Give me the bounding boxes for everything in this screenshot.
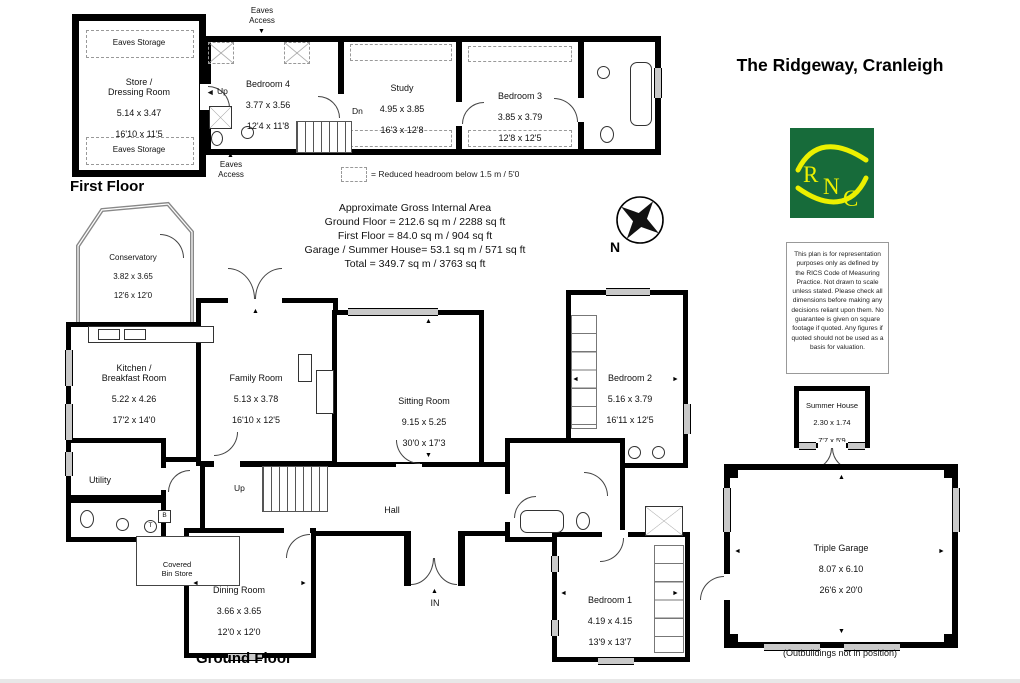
area-line-ground: Ground Floor = 212.6 sq m / 2288 sq ft [260,215,570,229]
area-line-total: Total = 349.7 sq m / 3763 sq ft [260,257,570,271]
dimension-arrow: ► [938,548,945,555]
up-label-first: Up [217,87,228,97]
outbuildings-note: (Outbuildings not in position) [720,648,960,658]
sink-icon [116,518,129,531]
eaves-storage-label-top: Eaves Storage [113,38,165,48]
toilet-icon [211,131,223,146]
bedroom2-door-gap [586,462,612,472]
room-name: Bedroom 1 [588,595,633,606]
room-imperial: 17'2 x 14'0 [102,415,167,426]
sink-icon [628,446,641,459]
room-metric: 2.30 x 1.74 [806,419,858,428]
room-imperial: 12'4 x 11'8 [246,121,291,132]
wardrobe-icon [654,545,684,653]
dimension-arrow: ► [672,590,679,597]
room-metric: 3.85 x 3.79 [498,112,543,123]
eaves-access-label-bottom: Eaves Access [218,160,244,179]
utility-window [65,452,73,476]
bedroom2-side-window [683,404,691,434]
compass-north-label: N [610,239,620,255]
up-label-ground: Up [234,484,245,494]
room-metric: 3.77 x 3.56 [246,100,291,111]
porch-wall-left [404,532,411,586]
room-name: Family Room [229,373,282,384]
eaves-access-label-top: Eaves Access [249,6,275,25]
entrance-door-arc [434,558,457,585]
wall-study-bedroom3-upper [456,36,462,102]
room-label-hall: Hall [384,494,400,526]
area-summary: Approximate Gross Internal Area Ground F… [260,201,570,271]
floorplan-canvas: Eaves Storage Eaves Storage Store / Dres… [0,0,1020,683]
area-line-garage: Garage / Summer House= 53.1 sq m / 571 s… [260,243,570,257]
room-label-dining: Dining Room 3.66 x 3.65 12'0 x 12'0 [213,574,265,648]
sitting-room-window [348,308,438,316]
room-name: Summer House [806,402,858,411]
room-name: Store / Dressing Room [108,77,170,98]
bedroom2-window [606,288,650,296]
room-label-garage: Triple Garage 8.07 x 6.10 26'6 x 20'0 [814,532,869,606]
room-name: Bedroom 2 [606,373,653,384]
dimension-arrow: ► [300,580,307,587]
room-metric: 4.95 x 3.85 [380,104,425,115]
up-arrow-icon: ▲ [227,152,234,159]
garage-window [952,488,960,532]
room-metric: 3.66 x 3.65 [213,606,265,617]
eaves-cupboard-box [208,42,234,64]
room-metric: 9.15 x 5.25 [398,417,450,428]
stairs-first-floor [296,121,352,153]
room-imperial: 16'10 x 12'5 [229,415,282,426]
garage-corner-pillar [724,634,738,648]
room-metric: 5.13 x 3.78 [229,394,282,405]
chimney-breast [316,370,334,414]
dimension-arrow: ► [672,376,679,383]
reduced-headroom-strip [468,46,572,62]
entrance-door-arc [411,558,434,585]
wall-bedroom3-bathroom-lower [578,122,584,155]
toilet-icon [600,126,614,143]
room-name: Utility [89,475,111,486]
garage-corner-pillar [724,464,738,478]
room-label-bedroom3: Bedroom 3 3.85 x 3.79 12'8 x 12'5 [498,80,543,154]
dimension-arrow: ▲ [425,318,432,325]
room-label-sitting: Sitting Room 9.15 x 5.25 30'0 x 17'3 [398,385,450,459]
area-heading: Approximate Gross Internal Area [260,201,570,215]
bath-icon [630,62,652,126]
bedroom1-window [598,657,634,665]
kitchen-window [65,350,73,386]
garage-side-door-arc [700,576,724,600]
wardrobe-icon [571,315,597,429]
room-imperial: 12'8 x 12'5 [498,133,543,144]
room-label-kitchen: Kitchen / Breakfast Room 5.22 x 4.26 17'… [102,352,167,436]
porch-opening-gap [411,531,458,539]
dimension-arrow: ▼ [425,452,432,459]
room-metric: 5.16 x 3.79 [606,394,653,405]
family-french-door-arc [255,268,282,299]
tank-marker: T [144,520,157,533]
boiler-marker: B [158,510,171,523]
family-french-door-arc [228,268,255,299]
dimension-arrow: ◄ [560,590,567,597]
wall-study-bedroom3-lower [456,126,462,155]
garage-corner-pillar [944,634,958,648]
room-label-conservatory: Conservatory 3.82 x 3.65 12'6 x 12'0 [109,243,157,310]
room-imperial: 13'9 x 13'7 [588,637,633,648]
eaves-cupboard-box [284,42,310,64]
rnc-logo: R N C [790,128,874,218]
room-name: Covered Bin Store [162,561,193,579]
room-name: Dining Room [213,585,265,596]
room-imperial: 30'0 x 17'3 [398,438,450,449]
room-metric: 5.14 x 3.47 [108,108,170,119]
logo-letter-c: C [843,186,858,211]
logo-letter-r: R [803,162,819,187]
bedroom1-side-window [551,620,559,636]
wall-bedroom3-bathroom-upper [578,36,584,98]
room-label-bedroom2: Bedroom 2 5.16 x 3.79 16'11 x 12'5 [606,362,653,436]
room-imperial: 16'11 x 12'5 [606,415,653,426]
garage-corner-pillar [944,464,958,478]
room-name: Study [380,83,425,94]
room-label-study: Study 4.95 x 3.85 16'3 x 12'8 [380,72,425,146]
legend-text: = Reduced headroom below 1.5 m / 5'0 [371,169,519,179]
room-label-bin-store: Covered Bin Store [162,552,193,587]
kitchen-hall-door-gap [214,456,240,468]
toilet-icon [80,510,94,528]
bath-icon [520,510,564,533]
dimension-arrow: ◄ [734,548,741,555]
sitting-hall-door-gap [396,464,422,474]
first-floor-title: First Floor [70,178,144,195]
sink-icon [652,446,665,459]
room-name: Bedroom 4 [246,79,291,90]
kitchen-sink-icon [124,329,146,340]
room-metric: 3.82 x 3.65 [109,272,157,282]
room-metric: 4.19 x 4.15 [588,616,633,627]
room-name: Bedroom 3 [498,91,543,102]
toilet-icon [576,512,590,530]
area-line-first: First Floor = 84.0 sq m / 904 sq ft [260,229,570,243]
room-metric: 5.22 x 4.26 [102,394,167,405]
dimension-arrow: ▼ [838,628,845,635]
room-label-bedroom4: Bedroom 4 3.77 x 3.56 12'4 x 11'8 [246,68,291,142]
down-arrow-icon: ▼ [258,28,265,35]
sink-icon [597,66,610,79]
compass-rose: N [608,194,668,256]
bedroom1-side-window [551,556,559,572]
stairs-ground-floor [262,466,328,512]
hall-block [200,462,514,536]
wall-bedroom4-study-upper [338,36,344,94]
dimension-arrow: ◄ [192,580,199,587]
room-imperial: 26'6 x 20'0 [814,585,869,596]
room-label-utility: Utility [89,464,111,496]
reduced-headroom-strip [350,44,452,61]
room-imperial: 16'3 x 12'8 [380,125,425,136]
dn-label: Dn [352,107,363,117]
bathroom-window [654,68,662,98]
entrance-in-label: IN [431,598,440,609]
entrance-arrow-icon: ▲ [431,588,438,595]
ground-floor-title: Ground Floor [196,650,292,667]
room-name: Kitchen / Breakfast Room [102,363,167,384]
fireplace-icon [298,354,312,382]
kitchen-window [65,404,73,440]
utility-door-arc [168,470,190,492]
dimension-arrow: ◄ [572,376,579,383]
legend-swatch [341,167,367,182]
garage-window [723,488,731,532]
shower-icon [645,506,683,536]
room-imperial: 12'0 x 12'0 [213,627,265,638]
room-label-family: Family Room 5.13 x 3.78 16'10 x 12'5 [229,362,282,436]
logo-letter-n: N [823,174,840,199]
room-name: Conservatory [109,253,157,263]
room-name: Hall [384,505,400,516]
property-title: The Ridgeway, Cranleigh [700,55,980,76]
up-arrow-icon: ◄ [206,88,214,98]
room-imperial: 16'10 x 11'5 [108,129,170,140]
shower-icon [209,106,232,129]
utility-block [66,438,166,500]
dimension-arrow: ▲ [838,474,845,481]
dimension-arrow: ▲ [252,308,259,315]
room-name: Triple Garage [814,543,869,554]
room-imperial: 12'6 x 12'0 [109,291,157,301]
room-label-bedroom1: Bedroom 1 4.19 x 4.15 13'9 x 13'7 [588,584,633,658]
room-label-store: Store / Dressing Room 5.14 x 3.47 16'10 … [108,66,170,150]
disclaimer-box: This plan is for representation purposes… [786,242,889,374]
room-name: Sitting Room [398,396,450,407]
garage-door-gap [723,574,731,600]
kitchen-sink-icon [98,329,120,340]
room-metric: 8.07 x 6.10 [814,564,869,575]
porch-wall-right [458,532,465,586]
